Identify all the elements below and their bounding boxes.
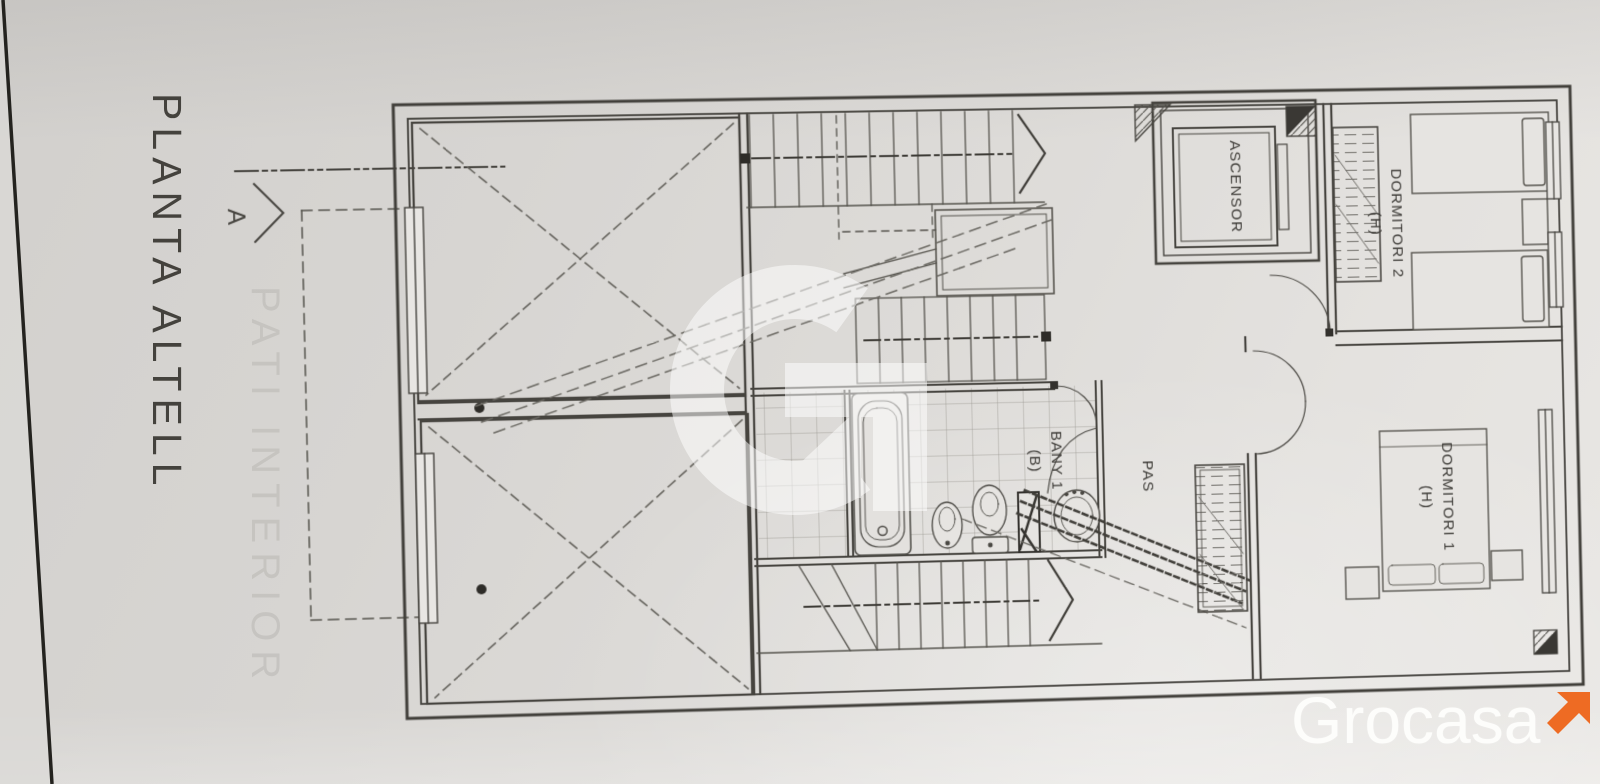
grocasa-g-watermark-icon bbox=[663, 258, 931, 526]
bedroom2-tag: (H) bbox=[1367, 212, 1384, 236]
bedroom2-closet bbox=[1333, 127, 1381, 282]
door-hinge-dot-bottom bbox=[476, 584, 486, 594]
bedroom1-window bbox=[1538, 410, 1556, 593]
bedroom1-corner-hatch bbox=[1534, 630, 1558, 654]
bedroom2-door bbox=[1270, 274, 1333, 338]
bedroom1-bed bbox=[1342, 428, 1523, 599]
section-marker bbox=[235, 167, 506, 243]
stairs-direction-arrow-up bbox=[751, 115, 1046, 198]
hatched-duct-square bbox=[1286, 106, 1316, 136]
sheet-title: PLANTA ALTELL bbox=[144, 93, 190, 492]
bedroom2-beds bbox=[1408, 112, 1553, 330]
bedroom1-tag: (H) bbox=[1418, 485, 1435, 509]
toilet bbox=[971, 485, 1008, 554]
stairs-direction-arrow-down bbox=[803, 560, 1073, 647]
hallway-label: PAS bbox=[1139, 460, 1156, 493]
elevator-label: ASCENSOR bbox=[1226, 140, 1245, 233]
window-left-top bbox=[405, 207, 428, 393]
bathroom-label: BANY 1 bbox=[1047, 431, 1065, 491]
bedroom1-double-door bbox=[1253, 350, 1306, 454]
arrow-start-square bbox=[740, 153, 750, 163]
arrow-end-square bbox=[1041, 331, 1051, 341]
grocasa-wordmark: Grocasa bbox=[1291, 682, 1540, 758]
bidet bbox=[932, 502, 963, 549]
stairs-upper-flight bbox=[745, 111, 1044, 208]
bedroom2-label: DORMITORI 2 bbox=[1387, 168, 1406, 278]
window-left-bottom bbox=[415, 453, 437, 623]
bedroom1-label: DORMITORI 1 bbox=[1438, 442, 1457, 552]
bathroom-tag: (B) bbox=[1026, 449, 1043, 473]
hall-wardrobe bbox=[1195, 464, 1247, 612]
section-label: A bbox=[222, 208, 250, 226]
grocasa-arrow-icon bbox=[1544, 690, 1592, 738]
grocasa-logo: Grocasa bbox=[1291, 682, 1600, 768]
